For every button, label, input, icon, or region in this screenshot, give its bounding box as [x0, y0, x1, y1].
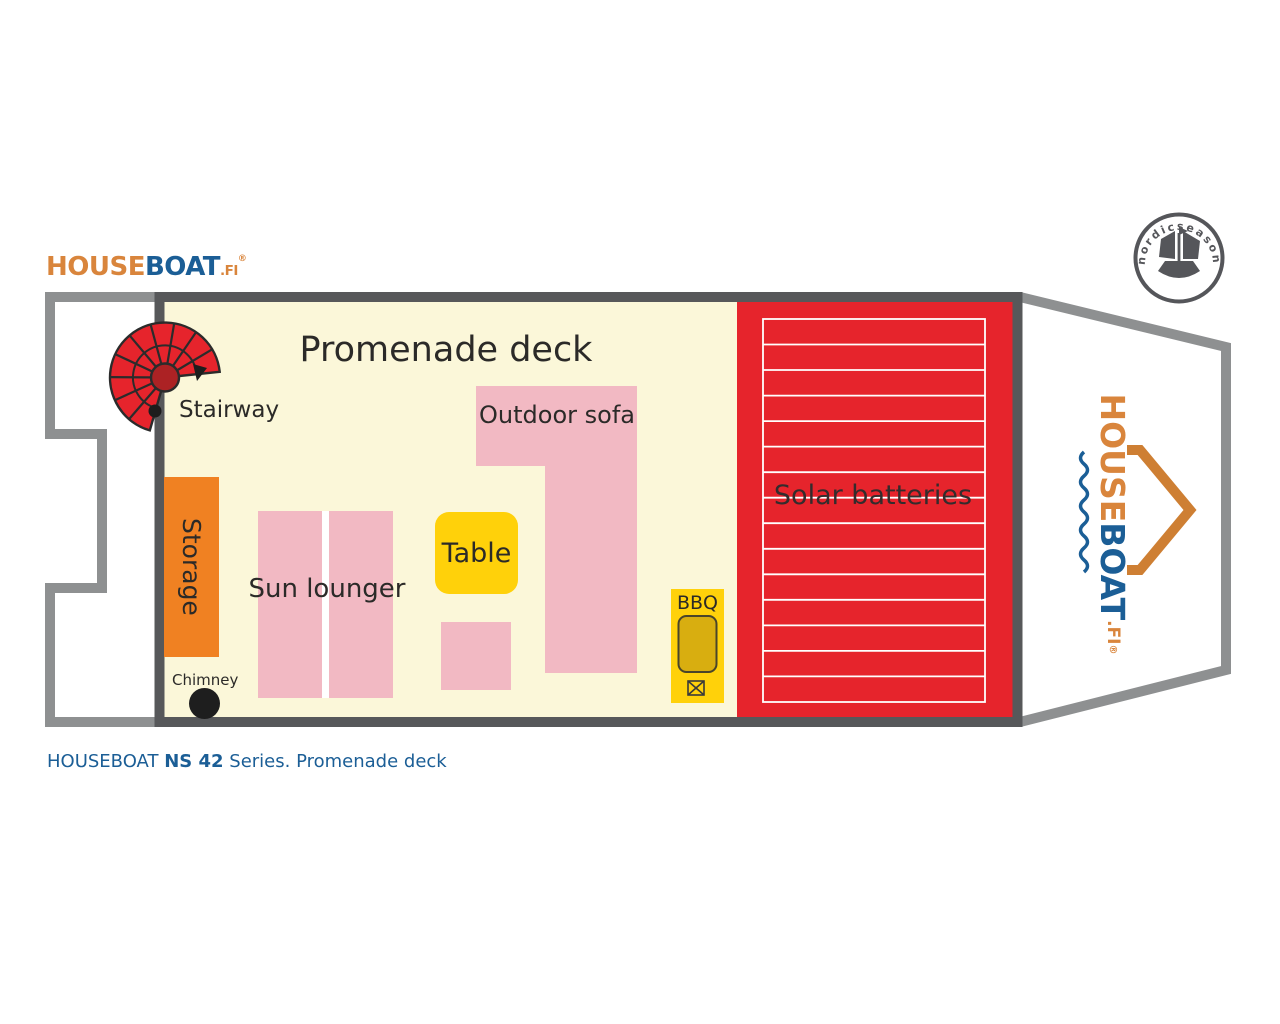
logo-boat: BOAT [145, 252, 220, 282]
page: nordicseason HOUSEBOAT.FI® Promenade dec… [0, 0, 1280, 1024]
storage-label: Storage [177, 518, 206, 616]
outdoor-sofa-side [545, 466, 637, 673]
bbq-area: BBQ [671, 589, 724, 703]
nordicseason-badge: nordicseason [1135, 215, 1224, 302]
header-logo: HOUSEBOAT.FI® [46, 252, 246, 282]
sun-lounger-left [258, 511, 322, 698]
bow-logo-registered-icon: ® [1108, 645, 1119, 655]
table-area: Table [435, 512, 518, 594]
bbq-grill-icon [679, 616, 717, 672]
sun-lounger-gap [322, 511, 329, 698]
solar-batteries-label: Solar batteries [763, 477, 983, 514]
table-label: Table [442, 538, 512, 569]
storage-area: Storage [164, 477, 219, 657]
sun-lounger-right [329, 511, 393, 698]
bow-logo-house: HOUSE [1094, 394, 1133, 523]
chimney-label: Chimney [172, 671, 238, 689]
logo-tld: .FI [220, 263, 238, 279]
stair-hub [151, 364, 179, 392]
caption-suffix: Series. Promenade deck [224, 751, 447, 772]
outdoor-sofa-label: Outdoor sofa [467, 402, 647, 428]
stairway-label: Stairway [179, 397, 279, 425]
plan-title: Promenade deck [276, 329, 616, 371]
caption: HOUSEBOAT NS 42 Series. Promenade deck [47, 751, 447, 772]
bow-logo-boat: BOAT [1094, 522, 1133, 620]
gas-burner-icon [688, 681, 704, 695]
caption-brand: HOUSEBOAT [47, 751, 164, 772]
stair-post-dot [149, 405, 162, 418]
caption-model: NS 42 [164, 751, 223, 772]
sun-lounger-label: Sun lounger [237, 574, 417, 604]
logo-house: HOUSE [46, 252, 145, 282]
chimney-icon [189, 688, 220, 719]
bow-brand-logo: HOUSEBOAT.FI® [1090, 388, 1136, 660]
bow-logo-tld: .FI [1103, 620, 1123, 644]
logo-registered-icon: ® [238, 254, 247, 264]
stool-area [441, 622, 511, 690]
